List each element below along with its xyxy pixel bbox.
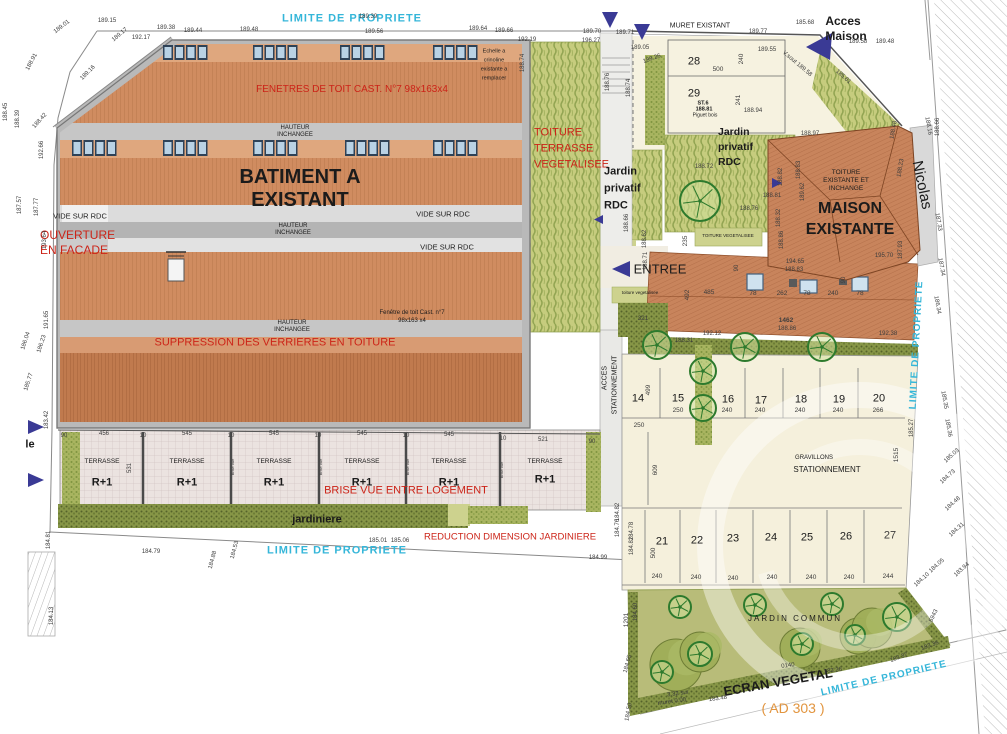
batiment-a: [53, 37, 530, 428]
parking-area: [622, 345, 918, 590]
tree-icon: [688, 642, 712, 666]
tree-icon: [821, 593, 843, 615]
arrow-down-icon: [602, 12, 618, 28]
roof-access-door: [166, 252, 186, 281]
planter-right: [586, 432, 601, 512]
arrow-right-icon: [28, 420, 44, 434]
site-plan: LIMITE DE PROPRIETELIMITE DE PROPRIETELI…: [0, 0, 1007, 734]
maison-existante-roof: [768, 125, 938, 280]
tree-icon: [731, 333, 759, 361]
site-plan-drawing: [0, 0, 1007, 734]
tree-icon: [690, 395, 716, 421]
tree-icon: [744, 594, 766, 616]
tree-icon: [808, 333, 836, 361]
arrow-right-icon: [28, 473, 44, 487]
tree-icon: [651, 661, 673, 683]
tree-icon: [669, 596, 691, 618]
hatch-strip-left: [28, 552, 55, 636]
roof-window: [747, 274, 763, 290]
roof-window: [800, 280, 817, 293]
tree-icon: [690, 358, 716, 384]
tree-icon: [643, 331, 671, 359]
roof-window: [852, 277, 868, 291]
planter-left: [62, 432, 80, 508]
terraces: [58, 430, 601, 512]
jardiniere-hedge: [58, 504, 528, 528]
roof-vent: [789, 279, 797, 287]
tree-icon: [680, 181, 720, 221]
acces-stationnement-strip: [600, 330, 622, 506]
